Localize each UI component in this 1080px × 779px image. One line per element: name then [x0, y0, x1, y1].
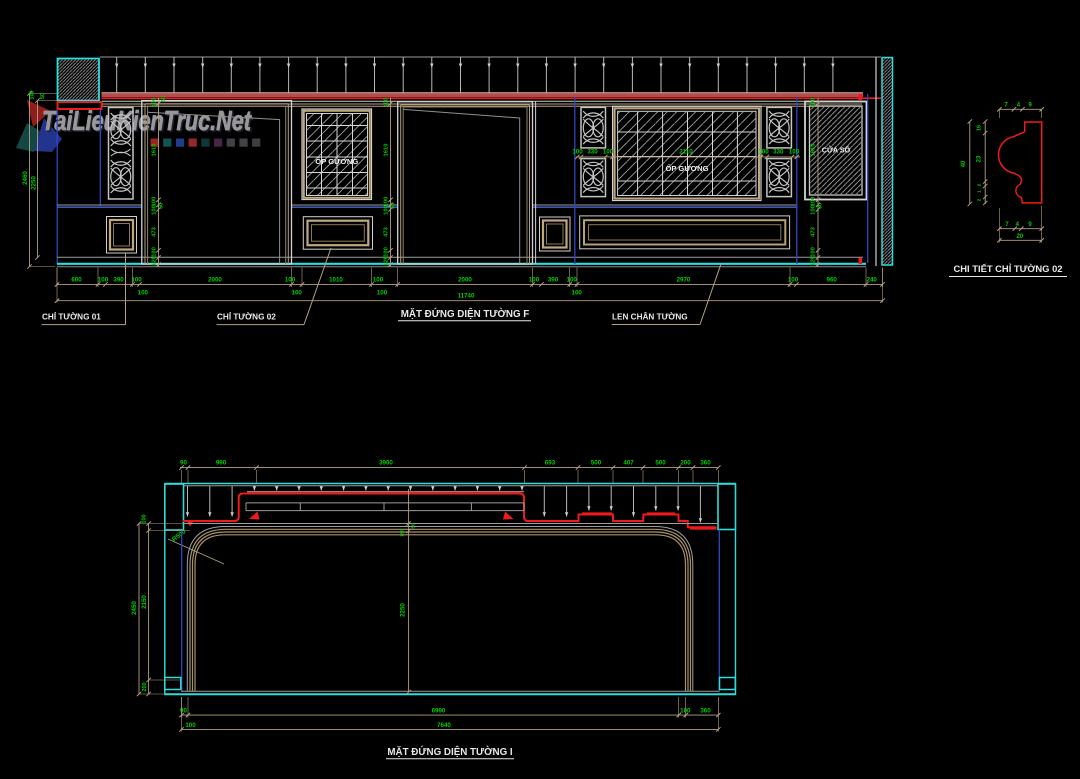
svg-text:50: 50	[391, 203, 397, 209]
svg-text:125: 125	[811, 255, 817, 265]
svg-text:100: 100	[30, 90, 36, 99]
svg-text:CỬA SỔ: CỬA SỔ	[822, 146, 851, 155]
svg-text:100: 100	[384, 98, 390, 108]
svg-text:100: 100	[377, 290, 388, 297]
svg-text:100: 100	[98, 277, 109, 284]
svg-text:390: 390	[548, 277, 559, 284]
svg-text:407: 407	[623, 460, 634, 467]
svg-text:100: 100	[185, 722, 196, 729]
svg-text:100: 100	[572, 290, 583, 297]
svg-text:2450: 2450	[131, 601, 138, 615]
svg-text:2000: 2000	[458, 277, 472, 284]
svg-text:360: 360	[700, 460, 711, 467]
svg-text:330: 330	[773, 149, 784, 156]
svg-text:693: 693	[545, 460, 556, 467]
svg-text:23: 23	[977, 155, 983, 162]
svg-text:1610: 1610	[811, 144, 817, 157]
svg-text:100: 100	[373, 277, 384, 284]
svg-text:100: 100	[811, 247, 817, 257]
svg-text:100: 100	[384, 205, 390, 215]
svg-text:100: 100	[131, 277, 142, 284]
svg-text:390: 390	[113, 277, 124, 284]
svg-text:2970: 2970	[677, 277, 691, 284]
svg-text:2: 2	[977, 183, 983, 186]
svg-text:CHI TIẾT CHỈ TƯỜNG 02: CHI TIẾT CHỈ TƯỜNG 02	[953, 263, 1062, 274]
svg-text:11740: 11740	[458, 293, 475, 300]
svg-text:40: 40	[961, 160, 967, 167]
svg-text:2000: 2000	[208, 277, 222, 284]
svg-text:100: 100	[811, 205, 817, 215]
svg-text:100: 100	[138, 290, 149, 297]
svg-text:100: 100	[789, 149, 800, 156]
svg-text:600: 600	[71, 277, 82, 284]
svg-text:2460: 2460	[22, 171, 29, 185]
svg-text:100: 100	[152, 205, 158, 215]
svg-text:960: 960	[827, 277, 838, 284]
svg-text:330: 330	[587, 149, 598, 156]
svg-text:20: 20	[1017, 234, 1024, 240]
svg-text:50: 50	[40, 93, 46, 99]
svg-text:100: 100	[142, 514, 148, 523]
svg-text:200: 200	[142, 682, 148, 691]
svg-text:100: 100	[811, 197, 817, 207]
svg-text:2: 2	[977, 198, 983, 201]
svg-text:50: 50	[161, 96, 167, 102]
svg-text:100: 100	[152, 197, 158, 207]
svg-text:100: 100	[384, 247, 390, 257]
svg-text:100: 100	[152, 247, 158, 257]
svg-text:100: 100	[603, 149, 614, 156]
svg-text:100: 100	[529, 277, 540, 284]
svg-text:2150: 2150	[141, 595, 148, 609]
svg-text:1010: 1010	[329, 277, 343, 284]
svg-text:100: 100	[788, 277, 799, 284]
svg-text:100: 100	[292, 290, 303, 297]
svg-text:125: 125	[152, 255, 158, 265]
svg-text:ỐP GƯƠNG: ỐP GƯƠNG	[315, 156, 358, 166]
svg-text:473: 473	[811, 226, 817, 236]
svg-text:360: 360	[700, 707, 711, 714]
svg-text:500: 500	[591, 460, 602, 467]
svg-text:6990: 6990	[432, 707, 446, 714]
svg-text:ỐP GƯƠNG: ỐP GƯƠNG	[665, 163, 708, 173]
svg-text:3900: 3900	[379, 460, 393, 467]
svg-text:90: 90	[180, 460, 187, 467]
svg-text:CHỈ TƯỜNG 02: CHỈ TƯỜNG 02	[217, 311, 276, 322]
svg-text:MẶT ĐỨNG DIỆN TƯỜNG F: MẶT ĐỨNG DIỆN TƯỜNG F	[401, 308, 530, 320]
svg-text:150: 150	[400, 529, 406, 537]
svg-text:2250: 2250	[31, 176, 38, 190]
svg-text:100: 100	[572, 149, 583, 156]
svg-text:1610: 1610	[152, 144, 158, 157]
svg-text:100: 100	[152, 98, 158, 108]
svg-text:240: 240	[867, 277, 878, 284]
svg-text:1: 1	[977, 190, 983, 193]
svg-text:CHỈ TƯỜNG 01: CHỈ TƯỜNG 01	[42, 311, 101, 322]
svg-text:473: 473	[152, 226, 158, 236]
svg-text:MẶT ĐỨNG DIỆN TƯỜNG I: MẶT ĐỨNG DIỆN TƯỜNG I	[387, 746, 513, 758]
svg-text:100: 100	[811, 98, 817, 108]
svg-text:473: 473	[384, 226, 390, 236]
svg-text:500: 500	[655, 460, 666, 467]
svg-text:2110: 2110	[679, 149, 693, 156]
svg-text:1610: 1610	[384, 144, 390, 157]
svg-text:100: 100	[567, 277, 578, 284]
svg-text:100: 100	[758, 149, 769, 156]
svg-text:100: 100	[285, 277, 296, 284]
svg-text:125: 125	[384, 255, 390, 265]
svg-text:16: 16	[977, 125, 983, 131]
svg-text:100: 100	[384, 197, 390, 207]
svg-text:LEN CHÂN TƯỜNG: LEN CHÂN TƯỜNG	[612, 311, 688, 322]
svg-text:990: 990	[216, 460, 227, 467]
svg-text:7640: 7640	[437, 722, 451, 729]
svg-text:200: 200	[680, 460, 691, 467]
svg-text:2250: 2250	[400, 603, 407, 617]
svg-text:50: 50	[411, 523, 417, 529]
svg-text:50: 50	[159, 203, 165, 209]
svg-text:90: 90	[180, 707, 187, 714]
svg-text:50: 50	[818, 203, 824, 209]
